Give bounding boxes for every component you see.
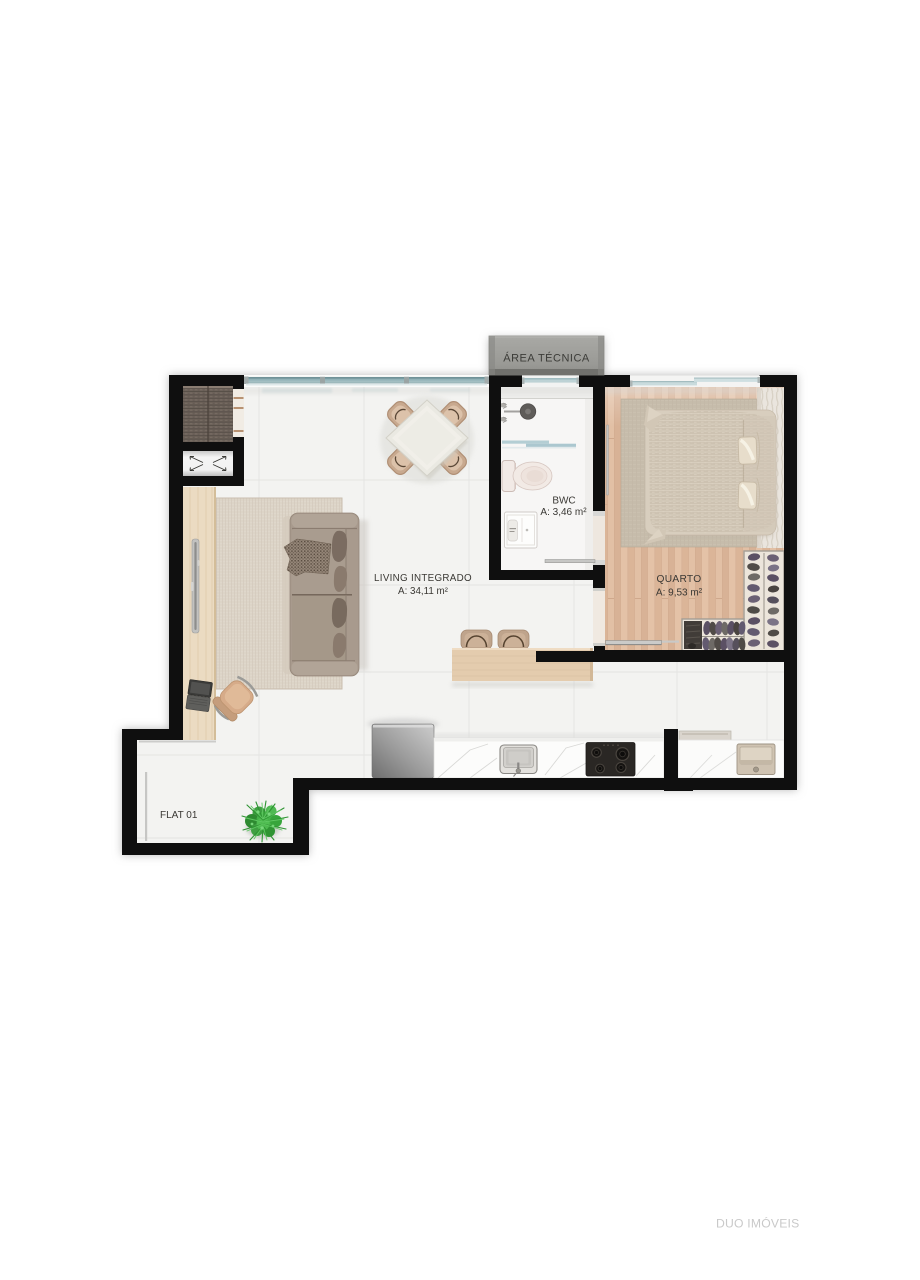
svg-text:LIVING INTEGRADO: LIVING INTEGRADO [374, 573, 472, 584]
svg-text:A: 3,46 m²: A: 3,46 m² [540, 507, 587, 518]
svg-text:BWC: BWC [552, 496, 575, 507]
svg-text:FLAT 01: FLAT 01 [160, 810, 198, 821]
svg-text:ÁREA TÉCNICA: ÁREA TÉCNICA [503, 352, 590, 365]
svg-text:A: 34,11 m²: A: 34,11 m² [398, 586, 449, 597]
svg-text:QUARTO: QUARTO [656, 574, 701, 585]
svg-text:A: 9,53 m²: A: 9,53 m² [656, 588, 703, 599]
svg-text:DUO IMÓVEIS: DUO IMÓVEIS [716, 1216, 799, 1231]
